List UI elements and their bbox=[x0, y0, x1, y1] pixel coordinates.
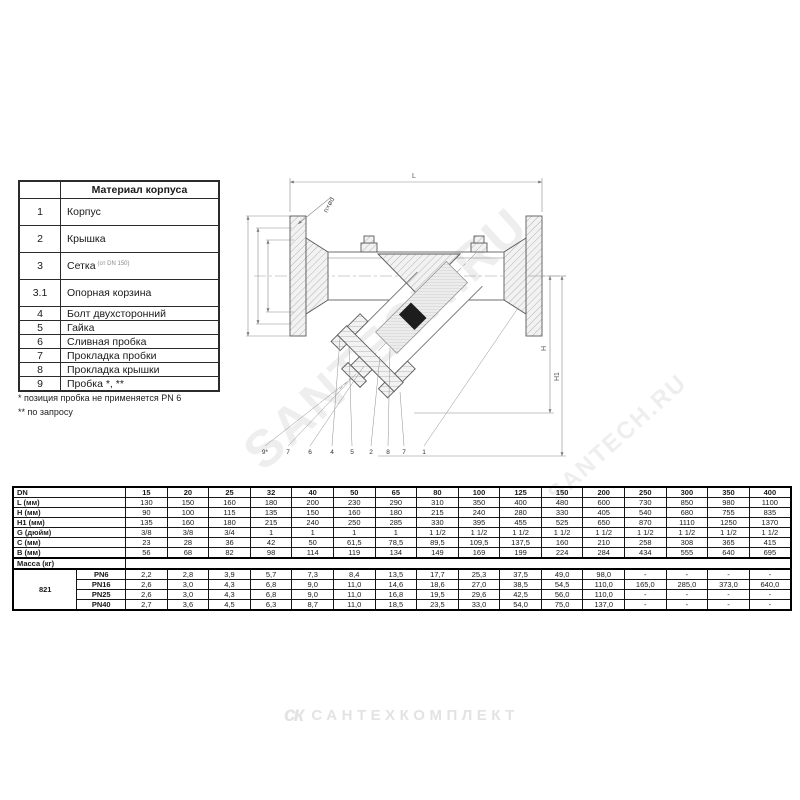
dimension-value: 160 bbox=[209, 498, 251, 508]
dimension-value: 180 bbox=[375, 508, 417, 518]
dimension-row: C (мм)232836425061,578,589,5109,5137,516… bbox=[13, 538, 791, 548]
mass-value: 25,3 bbox=[458, 569, 500, 580]
dimension-value: 135 bbox=[126, 518, 168, 528]
dn-value: 40 bbox=[292, 487, 334, 498]
callout-number: 1 bbox=[422, 449, 426, 456]
dimension-value: 1 bbox=[333, 528, 375, 538]
materials-row-name: Крышка bbox=[61, 226, 220, 253]
dimension-value: 89,5 bbox=[417, 538, 459, 548]
mass-value: 9,0 bbox=[292, 590, 334, 600]
dimension-value: 330 bbox=[417, 518, 459, 528]
dn-value: 20 bbox=[167, 487, 209, 498]
dimension-value: 215 bbox=[250, 518, 292, 528]
mass-value: - bbox=[666, 569, 708, 580]
dimension-value: 290 bbox=[375, 498, 417, 508]
dimensions-table: DN15202532405065801001251502002503003504… bbox=[12, 486, 792, 611]
dimension-value: 395 bbox=[458, 518, 500, 528]
mass-value: 18,5 bbox=[375, 600, 417, 611]
dn-value: 200 bbox=[583, 487, 625, 498]
materials-row-name: Прокладка пробки bbox=[61, 349, 220, 363]
dimension-value: 1250 bbox=[708, 518, 750, 528]
cover-bolt-icon bbox=[471, 243, 487, 252]
mass-value: 19,5 bbox=[417, 590, 459, 600]
materials-row-number: 2 bbox=[19, 226, 61, 253]
dimension-value: 350 bbox=[458, 498, 500, 508]
mass-value: 2,6 bbox=[126, 590, 168, 600]
materials-row-number: 6 bbox=[19, 335, 61, 349]
dimension-value: 215 bbox=[417, 508, 459, 518]
materials-row-number: 9 bbox=[19, 377, 61, 392]
mass-value: - bbox=[708, 569, 750, 580]
dimension-value: 149 bbox=[417, 548, 459, 559]
callout-number: 5 bbox=[350, 449, 354, 456]
dn-header-row: DN15202532405065801001251502002503003504… bbox=[13, 487, 791, 498]
dimension-value: 1 1/2 bbox=[625, 528, 667, 538]
dim-label-holes: n×ød bbox=[323, 196, 337, 214]
dimension-value: 1370 bbox=[749, 518, 791, 528]
mass-value: 54,5 bbox=[541, 580, 583, 590]
mass-value: 6,3 bbox=[250, 600, 292, 611]
footnote-line: ** по запросу bbox=[18, 406, 181, 420]
dimension-value: 98 bbox=[250, 548, 292, 559]
mass-label: Масса (кг) bbox=[13, 558, 126, 569]
dimension-value: 224 bbox=[541, 548, 583, 559]
mass-value: 6,8 bbox=[250, 580, 292, 590]
materials-row-name: Опорная корзина bbox=[61, 280, 220, 307]
dimension-value: 680 bbox=[666, 508, 708, 518]
dimension-row: L (мм)1301501601802002302903103504004806… bbox=[13, 498, 791, 508]
dimension-value: 540 bbox=[625, 508, 667, 518]
dim-label-L: L bbox=[412, 173, 416, 180]
mass-value: - bbox=[625, 569, 667, 580]
mass-value: - bbox=[625, 600, 667, 611]
dimension-value: 100 bbox=[167, 508, 209, 518]
mass-value: 42,5 bbox=[500, 590, 542, 600]
dimension-value: 150 bbox=[292, 508, 334, 518]
dimension-value: 640 bbox=[708, 548, 750, 559]
dimension-value: 650 bbox=[583, 518, 625, 528]
dn-value: 250 bbox=[625, 487, 667, 498]
mass-row: PN402,73,64,56,38,711,018,523,533,054,07… bbox=[13, 600, 791, 611]
callout-number: 8 bbox=[386, 449, 390, 456]
mass-value: - bbox=[749, 590, 791, 600]
mass-value: - bbox=[625, 590, 667, 600]
pn-label: PN16 bbox=[77, 580, 126, 590]
series-label: 821 bbox=[13, 569, 77, 610]
mass-value: 75,0 bbox=[541, 600, 583, 611]
materials-row-name: Болт двухсторонний bbox=[61, 307, 220, 321]
mass-value: 11,0 bbox=[333, 580, 375, 590]
mass-header-row: Масса (кг) bbox=[13, 558, 791, 569]
dimension-row-label: C (мм) bbox=[13, 538, 126, 548]
dimension-value: 1 bbox=[292, 528, 334, 538]
dimension-value: 400 bbox=[500, 498, 542, 508]
mass-value: 49,0 bbox=[541, 569, 583, 580]
dn-value: 32 bbox=[250, 487, 292, 498]
dimension-value: 330 bbox=[541, 508, 583, 518]
dimension-value: 134 bbox=[375, 548, 417, 559]
materials-row: 7Прокладка пробки bbox=[19, 349, 219, 363]
materials-row: 3Сетка(от DN 150) bbox=[19, 253, 219, 280]
footnotes: * позиция пробка не применяется PN 6 ** … bbox=[18, 392, 181, 420]
materials-row-name: Пробка *, ** bbox=[61, 377, 220, 392]
dimension-value: 135 bbox=[250, 508, 292, 518]
mass-value: 7,3 bbox=[292, 569, 334, 580]
mass-value: 6,8 bbox=[250, 590, 292, 600]
mass-value: 98,0 bbox=[583, 569, 625, 580]
dimension-row: H (мм)9010011513515016018021524028033040… bbox=[13, 508, 791, 518]
mass-value: 373,0 bbox=[708, 580, 750, 590]
dimension-value: 160 bbox=[541, 538, 583, 548]
dimension-value: 280 bbox=[500, 508, 542, 518]
dimension-value: 3/4 bbox=[209, 528, 251, 538]
materials-body: 1Корпус2Крышка3Сетка(от DN 150)3.1Опорна… bbox=[19, 199, 219, 392]
materials-row: 1Корпус bbox=[19, 199, 219, 226]
mass-value: 38,5 bbox=[500, 580, 542, 590]
dn-value: 25 bbox=[209, 487, 251, 498]
dimension-value: 1110 bbox=[666, 518, 708, 528]
mass-value: 18,6 bbox=[417, 580, 459, 590]
mass-value: 37,5 bbox=[500, 569, 542, 580]
footnote-line: * позиция пробка не применяется PN 6 bbox=[18, 392, 181, 406]
dimension-row: B (мм)5668829811411913414916919922428443… bbox=[13, 548, 791, 559]
dimension-value: 850 bbox=[666, 498, 708, 508]
materials-row-number: 3.1 bbox=[19, 280, 61, 307]
dimension-value: 1100 bbox=[749, 498, 791, 508]
pn-label: PN6 bbox=[77, 569, 126, 580]
mass-value: 4,3 bbox=[209, 590, 251, 600]
mass-value: 5,7 bbox=[250, 569, 292, 580]
dimension-value: 50 bbox=[292, 538, 334, 548]
materials-row: 6Сливная пробка bbox=[19, 335, 219, 349]
mass-value: 2,2 bbox=[126, 569, 168, 580]
mass-value: - bbox=[708, 600, 750, 611]
dim-label-H: H bbox=[541, 346, 548, 351]
dimension-value: 755 bbox=[708, 508, 750, 518]
materials-row-name: Прокладка крышки bbox=[61, 363, 220, 377]
dimension-value: 1 1/2 bbox=[417, 528, 459, 538]
materials-header-row: Материал корпуса bbox=[19, 181, 219, 199]
dimension-value: 3/8 bbox=[167, 528, 209, 538]
dimension-value: 160 bbox=[333, 508, 375, 518]
mass-value: 9,0 bbox=[292, 580, 334, 590]
dimension-value: 36 bbox=[209, 538, 251, 548]
mass-value: 3,0 bbox=[167, 590, 209, 600]
dimension-row-label: H (мм) bbox=[13, 508, 126, 518]
dimension-value: 28 bbox=[167, 538, 209, 548]
dimension-value: 114 bbox=[292, 548, 334, 559]
dimension-value: 415 bbox=[749, 538, 791, 548]
dimension-value: 555 bbox=[666, 548, 708, 559]
dimension-value: 455 bbox=[500, 518, 542, 528]
dn-value: 150 bbox=[541, 487, 583, 498]
dimension-value: 434 bbox=[625, 548, 667, 559]
dimension-row-label: B (мм) bbox=[13, 548, 126, 559]
dn-value: 300 bbox=[666, 487, 708, 498]
left-flange bbox=[290, 216, 306, 336]
dimension-value: 365 bbox=[708, 538, 750, 548]
materials-row-number: 1 bbox=[19, 199, 61, 226]
dimension-value: 480 bbox=[541, 498, 583, 508]
dn-corner-label: DN bbox=[13, 487, 126, 498]
materials-table: Материал корпуса 1Корпус2Крышка3Сетка(от… bbox=[18, 180, 220, 392]
mass-value: 285,0 bbox=[666, 580, 708, 590]
mass-value: 13,5 bbox=[375, 569, 417, 580]
materials-row-name: Корпус bbox=[61, 199, 220, 226]
dimension-value: 1 1/2 bbox=[458, 528, 500, 538]
dimension-value: 130 bbox=[126, 498, 168, 508]
dimension-value: 1 1/2 bbox=[749, 528, 791, 538]
logo-icon: ск bbox=[284, 703, 302, 727]
callout-number: 4 bbox=[330, 449, 334, 456]
mass-value: 2,6 bbox=[126, 580, 168, 590]
dimension-value: 600 bbox=[583, 498, 625, 508]
callout-number: 9* bbox=[262, 449, 269, 456]
callout-number: 2 bbox=[369, 449, 373, 456]
dimension-value: 42 bbox=[250, 538, 292, 548]
pn-label: PN40 bbox=[77, 600, 126, 611]
callout-number: 6 bbox=[308, 449, 312, 456]
materials-row-number: 5 bbox=[19, 321, 61, 335]
mass-value: 54,0 bbox=[500, 600, 542, 611]
mass-value: 110,0 bbox=[583, 590, 625, 600]
dimension-value: 200 bbox=[292, 498, 334, 508]
mass-value: - bbox=[708, 590, 750, 600]
mass-value: 16,8 bbox=[375, 590, 417, 600]
mass-value: 165,0 bbox=[625, 580, 667, 590]
mass-value: 17,7 bbox=[417, 569, 459, 580]
dn-value: 100 bbox=[458, 487, 500, 498]
dimension-value: 1 bbox=[375, 528, 417, 538]
dimension-value: 1 1/2 bbox=[541, 528, 583, 538]
dimension-value: 1 1/2 bbox=[708, 528, 750, 538]
dn-value: 65 bbox=[375, 487, 417, 498]
materials-row-number: 8 bbox=[19, 363, 61, 377]
dimension-value: 1 1/2 bbox=[666, 528, 708, 538]
mass-value: 56,0 bbox=[541, 590, 583, 600]
dimension-value: 258 bbox=[625, 538, 667, 548]
materials-row-number: 3 bbox=[19, 253, 61, 280]
materials-row-name: Гайка bbox=[61, 321, 220, 335]
strainer-drawing: L n×ød H H1 9* 7 6 4 5 2 8 7 1 bbox=[228, 166, 576, 478]
dimension-value: 230 bbox=[333, 498, 375, 508]
dn-value: 350 bbox=[708, 487, 750, 498]
dimension-row-label: G (дюйм) bbox=[13, 528, 126, 538]
dimension-value: 56 bbox=[126, 548, 168, 559]
dimension-row: H1 (мм)135160180215240250285330395455525… bbox=[13, 518, 791, 528]
mass-value: 23,5 bbox=[417, 600, 459, 611]
mass-value: - bbox=[666, 590, 708, 600]
dimension-value: 1 bbox=[250, 528, 292, 538]
dimension-row-label: H1 (мм) bbox=[13, 518, 126, 528]
materials-row: 9Пробка *, ** bbox=[19, 377, 219, 392]
dn-value: 400 bbox=[749, 487, 791, 498]
mass-value: 137,0 bbox=[583, 600, 625, 611]
dimension-value: 240 bbox=[458, 508, 500, 518]
mass-value: 11,0 bbox=[333, 590, 375, 600]
dimension-value: 525 bbox=[541, 518, 583, 528]
logo-text: САНТЕХКОМПЛЕКТ bbox=[311, 707, 519, 724]
dimension-row-label: L (мм) bbox=[13, 498, 126, 508]
dimension-value: 115 bbox=[209, 508, 251, 518]
mass-value: 110,0 bbox=[583, 580, 625, 590]
mass-value: - bbox=[749, 600, 791, 611]
dimension-value: 3/8 bbox=[126, 528, 168, 538]
callout-number: 7 bbox=[286, 449, 290, 456]
dn-value: 80 bbox=[417, 487, 459, 498]
dimension-value: 61,5 bbox=[333, 538, 375, 548]
materials-row: 2Крышка bbox=[19, 226, 219, 253]
mass-row: 821PN62,22,83,95,77,38,413,517,725,337,5… bbox=[13, 569, 791, 580]
mass-value: 2,8 bbox=[167, 569, 209, 580]
santech-logo: ск САНТЕХКОМПЛЕКТ bbox=[284, 703, 519, 727]
dimension-value: 870 bbox=[625, 518, 667, 528]
mass-value: 14,6 bbox=[375, 580, 417, 590]
mass-value: - bbox=[749, 569, 791, 580]
dim-label-H1: H1 bbox=[554, 372, 561, 381]
mass-value: 8,4 bbox=[333, 569, 375, 580]
dimension-value: 78,5 bbox=[375, 538, 417, 548]
materials-row-number: 4 bbox=[19, 307, 61, 321]
pn-label: PN25 bbox=[77, 590, 126, 600]
dimension-value: 695 bbox=[749, 548, 791, 559]
materials-header-title: Материал корпуса bbox=[61, 181, 220, 199]
dimension-value: 730 bbox=[625, 498, 667, 508]
materials-row-name: Сетка(от DN 150) bbox=[61, 253, 220, 280]
dimension-value: 835 bbox=[749, 508, 791, 518]
materials-row-number: 7 bbox=[19, 349, 61, 363]
mass-row: PN252,63,04,36,89,011,016,819,529,642,55… bbox=[13, 590, 791, 600]
dimension-value: 980 bbox=[708, 498, 750, 508]
dimension-value: 160 bbox=[167, 518, 209, 528]
dimension-value: 240 bbox=[292, 518, 334, 528]
dimension-value: 308 bbox=[666, 538, 708, 548]
dimension-value: 199 bbox=[500, 548, 542, 559]
dimension-value: 210 bbox=[583, 538, 625, 548]
dimension-value: 68 bbox=[167, 548, 209, 559]
dimension-value: 119 bbox=[333, 548, 375, 559]
materials-header-empty bbox=[19, 181, 61, 199]
mass-value: 2,7 bbox=[126, 600, 168, 611]
mass-value: 3,6 bbox=[167, 600, 209, 611]
dimension-value: 90 bbox=[126, 508, 168, 518]
dimension-value: 150 bbox=[167, 498, 209, 508]
mass-value: 29,6 bbox=[458, 590, 500, 600]
mass-value: 3,0 bbox=[167, 580, 209, 590]
strainer-drawing-svg: L n×ød H H1 9* 7 6 4 5 2 8 7 1 bbox=[228, 166, 576, 478]
dimension-value: 1 1/2 bbox=[583, 528, 625, 538]
dimension-value: 405 bbox=[583, 508, 625, 518]
materials-row: 3.1Опорная корзина bbox=[19, 280, 219, 307]
cover-bolt-icon bbox=[361, 243, 377, 252]
dimension-value: 180 bbox=[250, 498, 292, 508]
mass-value: - bbox=[666, 600, 708, 611]
mass-value: 4,3 bbox=[209, 580, 251, 590]
materials-row: 8Прокладка крышки bbox=[19, 363, 219, 377]
dn-value: 125 bbox=[500, 487, 542, 498]
materials-row: 5Гайка bbox=[19, 321, 219, 335]
dn-value: 15 bbox=[126, 487, 168, 498]
materials-row-name: Сливная пробка bbox=[61, 335, 220, 349]
dimension-value: 310 bbox=[417, 498, 459, 508]
dimension-value: 169 bbox=[458, 548, 500, 559]
dimension-value: 109,5 bbox=[458, 538, 500, 548]
dimension-value: 284 bbox=[583, 548, 625, 559]
mass-band bbox=[126, 558, 791, 569]
materials-row-note: (от DN 150) bbox=[98, 261, 130, 267]
mass-row: PN162,63,04,36,89,011,014,618,627,038,55… bbox=[13, 580, 791, 590]
mass-value: 27,0 bbox=[458, 580, 500, 590]
callout-number: 7 bbox=[402, 449, 406, 456]
materials-row: 4Болт двухсторонний bbox=[19, 307, 219, 321]
dimension-value: 1 1/2 bbox=[500, 528, 542, 538]
dn-value: 50 bbox=[333, 487, 375, 498]
mass-value: 640,0 bbox=[749, 580, 791, 590]
mass-value: 4,5 bbox=[209, 600, 251, 611]
dimension-value: 250 bbox=[333, 518, 375, 528]
dimension-value: 137,5 bbox=[500, 538, 542, 548]
mass-value: 8,7 bbox=[292, 600, 334, 611]
mass-value: 11,0 bbox=[333, 600, 375, 611]
dimension-row: G (дюйм)3/83/83/411111 1/21 1/21 1/21 1/… bbox=[13, 528, 791, 538]
dimension-value: 23 bbox=[126, 538, 168, 548]
dimension-value: 82 bbox=[209, 548, 251, 559]
dimension-value: 180 bbox=[209, 518, 251, 528]
mass-value: 33,0 bbox=[458, 600, 500, 611]
dimension-value: 285 bbox=[375, 518, 417, 528]
mass-value: 3,9 bbox=[209, 569, 251, 580]
